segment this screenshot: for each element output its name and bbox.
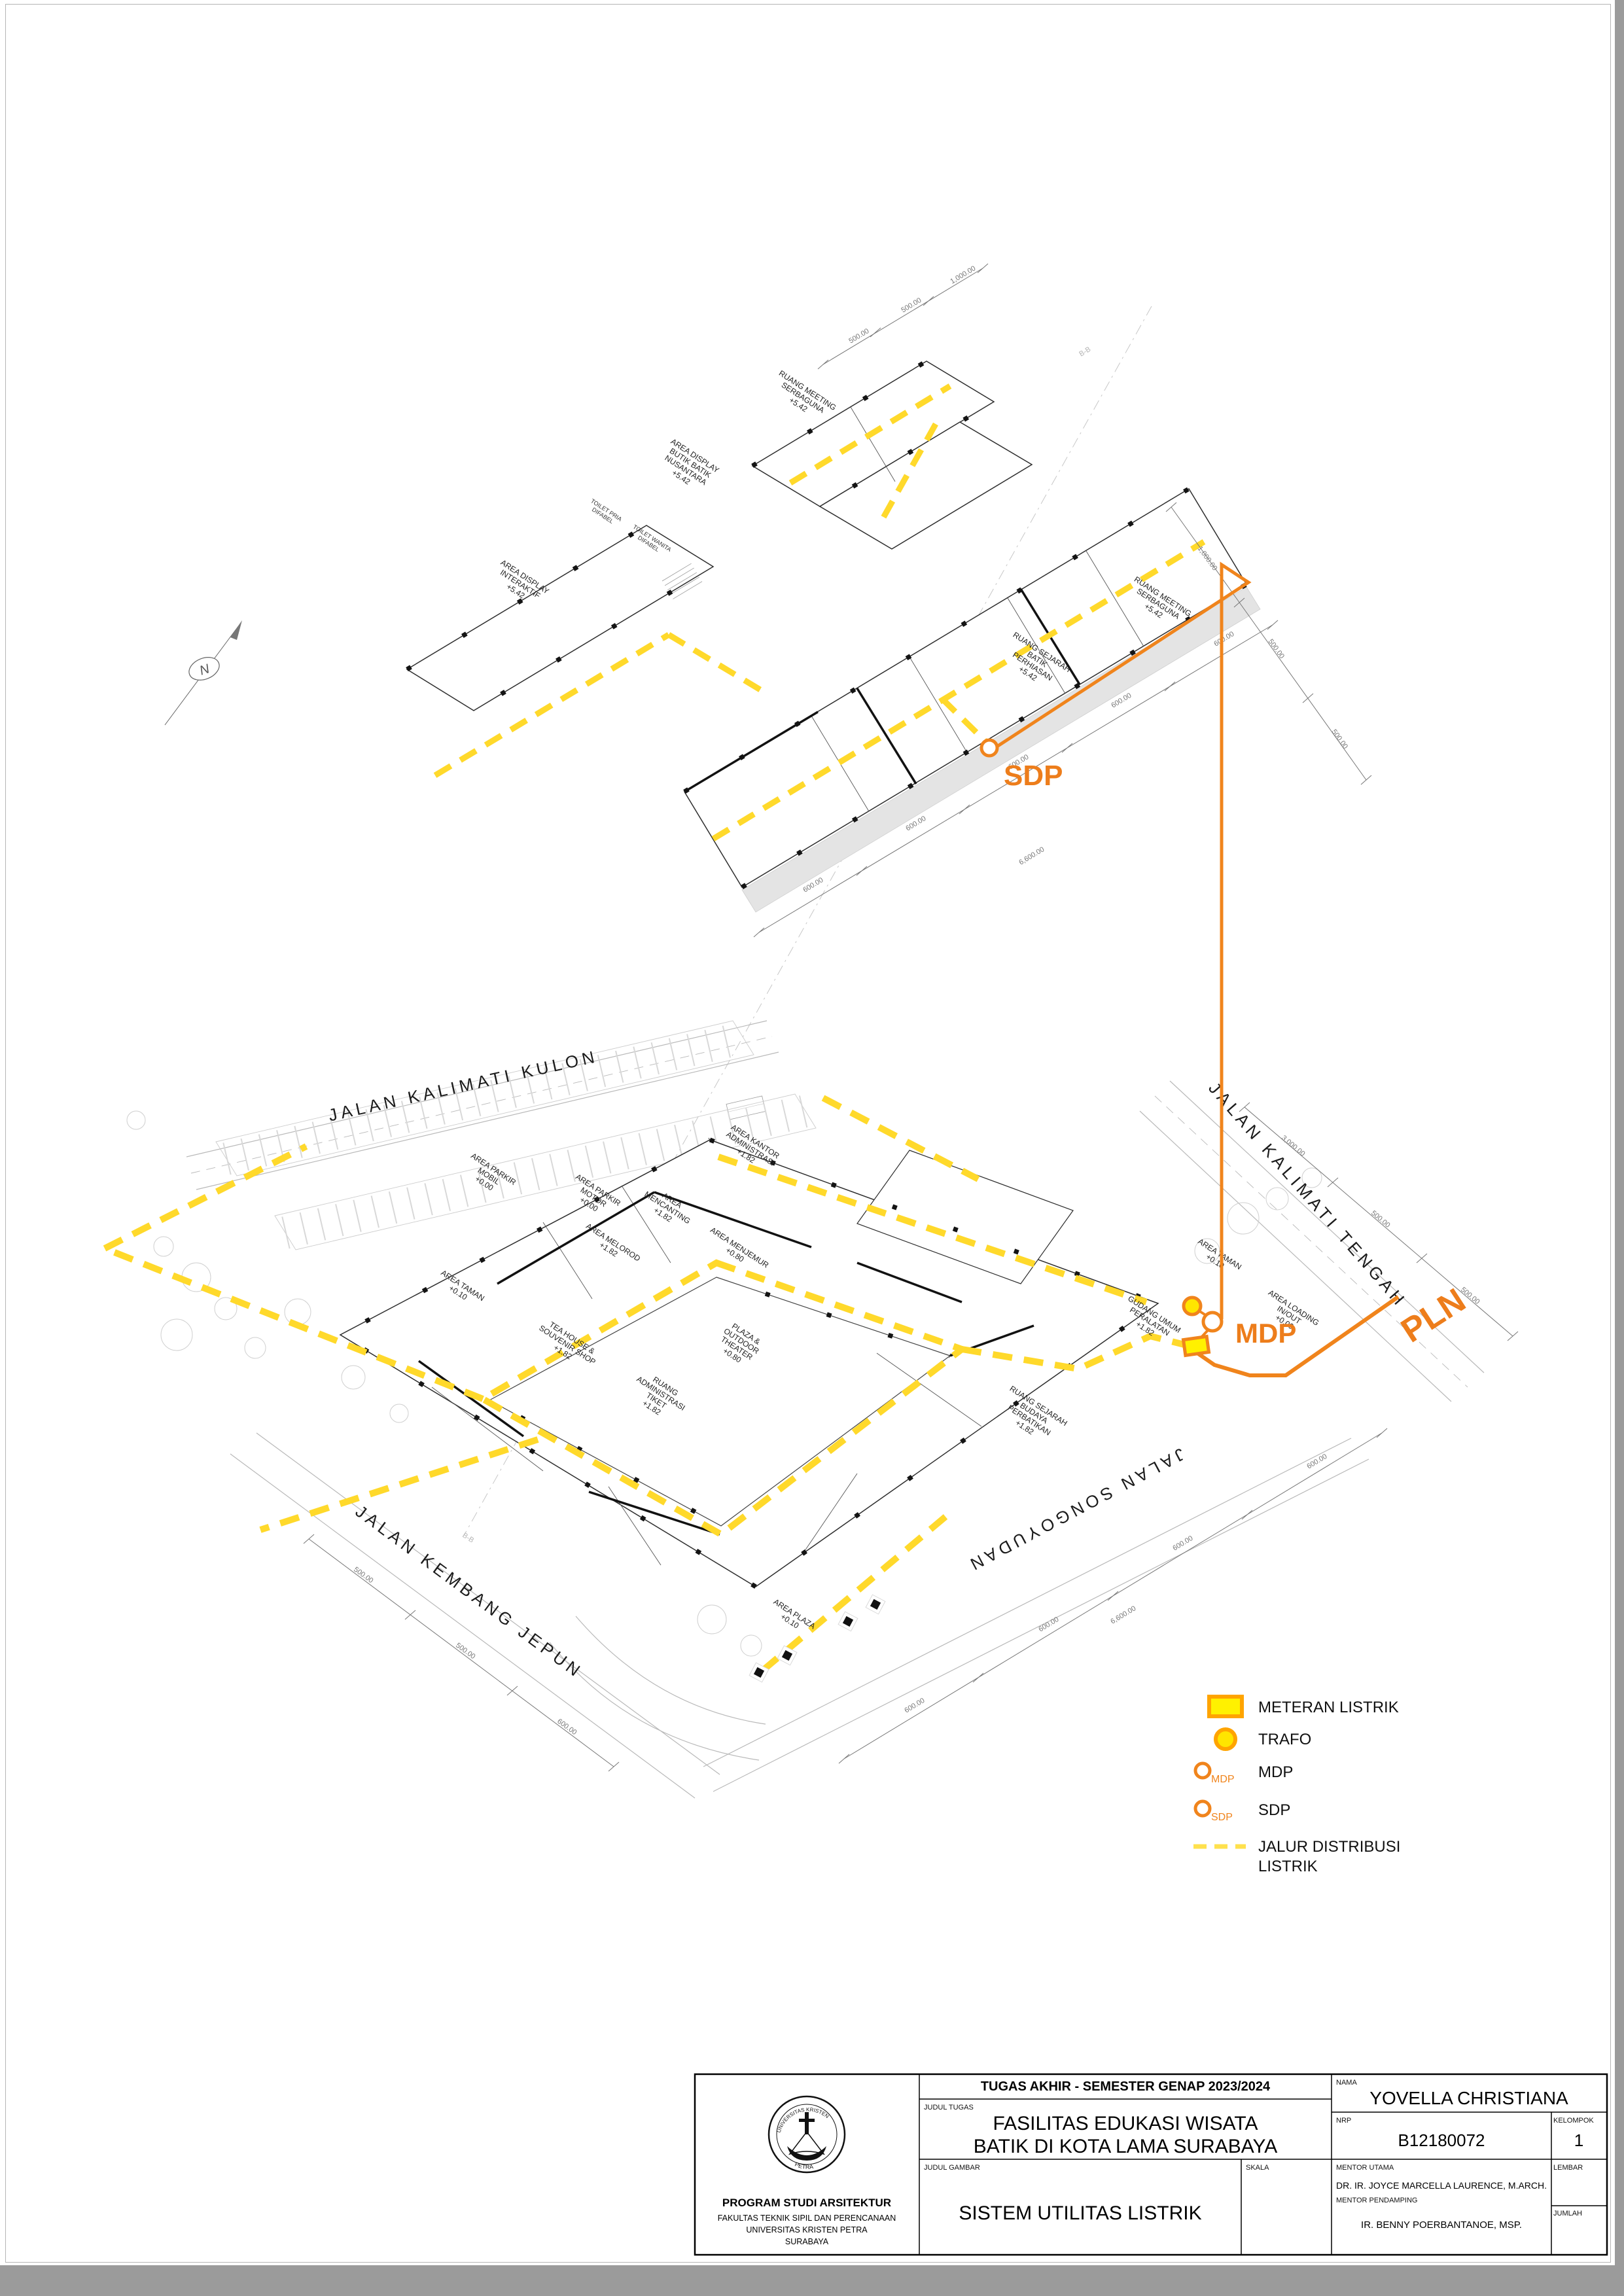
- svg-text:JALAN SONGOYUDAN: JALAN SONGOYUDAN: [964, 1444, 1188, 1576]
- tb-prodi: PROGRAM STUDI ARSITEKTUR: [722, 2197, 891, 2209]
- tb-fakultas: FAKULTAS TEKNIK SIPIL DAN PERENCANAAN: [718, 2214, 896, 2223]
- mdp-marker: [1203, 1313, 1222, 1331]
- svg-text:600.00: 600.00: [556, 1718, 578, 1737]
- tb-mentor-utama: DR. IR. JOYCE MARCELLA LAURENCE, M.ARCH.: [1336, 2180, 1547, 2191]
- tb-header: TUGAS AKHIR - SEMESTER GENAP 2023/2024: [981, 2079, 1271, 2094]
- svg-text:B-B: B-B: [461, 1531, 475, 1544]
- legend-sdp-tag: SDP: [1211, 1812, 1233, 1823]
- svg-text:500.00: 500.00: [1267, 638, 1286, 660]
- tb-judul-gambar: SISTEM UTILITAS LISTRIK: [959, 2202, 1201, 2224]
- trafo-marker: [1184, 1298, 1201, 1315]
- tb-mentor-pendamping-label: MENTOR PENDAMPING: [1336, 2197, 1417, 2204]
- svg-text:1,000.00: 1,000.00: [949, 264, 977, 285]
- svg-text:500.00: 500.00: [900, 296, 923, 315]
- svg-text:500.00: 500.00: [352, 1566, 374, 1585]
- tb-judul-tugas-label: JUDUL TUGAS: [924, 2104, 974, 2111]
- sdp-marker: [981, 740, 997, 756]
- svg-text:6,600.00: 6,600.00: [1017, 845, 1046, 866]
- plan-svg: N B-B B-B: [0, 0, 1624, 2296]
- upper-floor-plan: RUANG MEETINGSERBAGUNA+5.42 AREA DISPLAY…: [407, 264, 1371, 937]
- legend-sdp-icon: [1195, 1801, 1210, 1816]
- tb-kota: SURABAYA: [785, 2237, 829, 2246]
- tb-univ: UNIVERSITAS KRISTEN PETRA: [746, 2225, 868, 2234]
- legend-jalur-label-1: JALUR DISTRIBUSI: [1258, 1838, 1400, 1856]
- tb-nrp: B12180072: [1398, 2130, 1485, 2150]
- site-plan: JALAN KALIMATI KULON JALAN KALIMATI TENG…: [105, 1021, 1518, 1798]
- university-logo: UNIVERSITAS KRISTEN PETRA: [769, 2096, 845, 2172]
- svg-text:500.00: 500.00: [1330, 728, 1349, 751]
- mdp-label: MDP: [1235, 1318, 1296, 1349]
- tb-jumlah-label: JUMLAH: [1553, 2210, 1582, 2217]
- tb-lembar-label: LEMBAR: [1553, 2164, 1583, 2172]
- tb-nama-label: NAMA: [1336, 2079, 1357, 2087]
- tb-nama: YOVELLA CHRISTIANA: [1369, 2088, 1568, 2108]
- svg-text:JALAN KALIMATI TENGAH: JALAN KALIMATI TENGAH: [1205, 1078, 1411, 1311]
- legend-meteran-label: METERAN LISTRIK: [1258, 1699, 1399, 1716]
- svg-text:JALAN KALIMATI KULON: JALAN KALIMATI KULON: [327, 1046, 600, 1125]
- legend: METERAN LISTRIK TRAFO MDP MDP SDP SDP JA…: [1193, 1697, 1400, 1875]
- title-block: TUGAS AKHIR - SEMESTER GENAP 2023/2024 J…: [695, 2074, 1607, 2255]
- svg-text:500.00: 500.00: [1369, 1209, 1391, 1229]
- svg-text:6,600.00: 6,600.00: [1109, 1604, 1137, 1625]
- sdp-label: SDP: [1004, 760, 1063, 792]
- lamp-posts: [749, 1595, 885, 1682]
- legend-jalur-label-2: LISTRIK: [1258, 1858, 1318, 1875]
- legend-sdp-label: SDP: [1258, 1801, 1290, 1819]
- tb-mentor-pendamping: IR. BENNY POERBANTANOE, MSP.: [1361, 2219, 1522, 2231]
- legend-trafo-icon: [1216, 1729, 1235, 1749]
- legend-mdp-label: MDP: [1258, 1763, 1293, 1781]
- svg-text:500.00: 500.00: [454, 1642, 476, 1661]
- drawing-sheet: N B-B B-B: [0, 0, 1624, 2296]
- tb-mentor-utama-label: MENTOR UTAMA: [1336, 2164, 1394, 2172]
- legend-trafo-label: TRAFO: [1258, 1731, 1311, 1748]
- tb-judul-tugas-1: FASILITAS EDUKASI WISATA: [993, 2113, 1258, 2134]
- tb-kelompok: 1: [1574, 2130, 1583, 2150]
- svg-text:600.00: 600.00: [903, 1697, 926, 1715]
- tb-judul-tugas-2: BATIK DI KOTA LAMA SURABAYA: [974, 2136, 1278, 2157]
- legend-meteran-icon: [1209, 1697, 1242, 1716]
- legend-mdp-tag: MDP: [1211, 1774, 1235, 1785]
- svg-text:B-B: B-B: [1078, 345, 1092, 359]
- meter-marker: [1184, 1337, 1209, 1356]
- tb-kelompok-label: KELOMPOK: [1553, 2117, 1594, 2125]
- tb-nrp-label: NRP: [1336, 2117, 1351, 2125]
- tb-judul-gambar-label: JUDUL GAMBAR: [924, 2164, 980, 2172]
- legend-mdp-icon: [1195, 1763, 1210, 1778]
- svg-text:600.00: 600.00: [1037, 1616, 1060, 1634]
- north-arrow: N: [165, 620, 242, 725]
- tb-skala-label: SKALA: [1246, 2164, 1269, 2172]
